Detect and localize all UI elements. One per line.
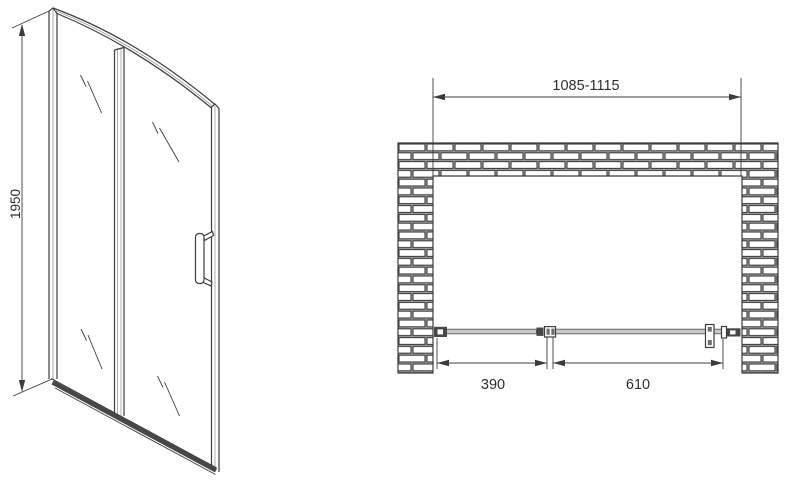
center-post-top-cap: [115, 48, 125, 51]
arrowhead-left: [433, 94, 445, 100]
height-dimension: 1950: [8, 11, 52, 396]
door-panel-dimension-label: 610: [626, 377, 650, 393]
wall-profile-right: [722, 327, 741, 339]
width-dimension-label: 1085-1115: [552, 78, 619, 94]
door-frame: [49, 8, 219, 475]
door-panel-dimension: 610: [553, 337, 723, 393]
door-glass-panel: [555, 329, 722, 334]
reflection-mark-fixed-upper: [81, 75, 102, 113]
fixed-glass-panel: [446, 329, 537, 334]
bottom-rail-bottom-edge: [55, 388, 216, 475]
bottom-rail-profile: [53, 383, 217, 471]
glass-reflection-marks: [81, 75, 180, 416]
reflection-mark-door-upper: [153, 122, 180, 162]
fixed-panel-dimension-label: 390: [481, 377, 505, 393]
plan-view: 1085-1115: [398, 78, 778, 393]
fixed-panel-dimension: 390: [437, 337, 547, 393]
right-frame-post: [212, 104, 220, 472]
top-rail-inner-edge: [55, 11, 213, 107]
arrowhead-right: [711, 360, 723, 366]
handle-top-view: [706, 325, 715, 348]
handle-bar: [196, 234, 205, 284]
technical-drawing-page: 1950: [0, 0, 787, 481]
top-frame-rail: [53, 8, 215, 108]
reflection-mark-door-lower: [158, 376, 180, 416]
height-dimension-label: 1950: [8, 189, 23, 219]
door-assembly-top-view: [434, 325, 741, 348]
arrowhead-right: [729, 94, 741, 100]
panel-connector: [537, 327, 556, 337]
bottom-frame-rail: [51, 379, 217, 475]
center-frame-post: [115, 48, 125, 418]
top-rail-lower-edge: [57, 14, 212, 109]
wall-profile-left: [434, 327, 447, 337]
reflection-mark-fixed-lower: [81, 329, 102, 369]
shower-door-drawing: 1950: [0, 0, 787, 481]
bottom-rail-top-edge: [51, 379, 217, 469]
arrowhead-up: [19, 24, 25, 36]
arrowhead-right: [535, 360, 547, 366]
arrowhead-down: [19, 380, 25, 392]
door-handle: [196, 232, 214, 287]
extension-line-top: [12, 11, 49, 28]
extension-line-bottom: [13, 379, 52, 396]
left-frame-post: [49, 8, 57, 379]
front-view: 1950: [8, 8, 219, 475]
arrowhead-left: [437, 360, 449, 366]
arrowhead-left: [553, 360, 565, 366]
